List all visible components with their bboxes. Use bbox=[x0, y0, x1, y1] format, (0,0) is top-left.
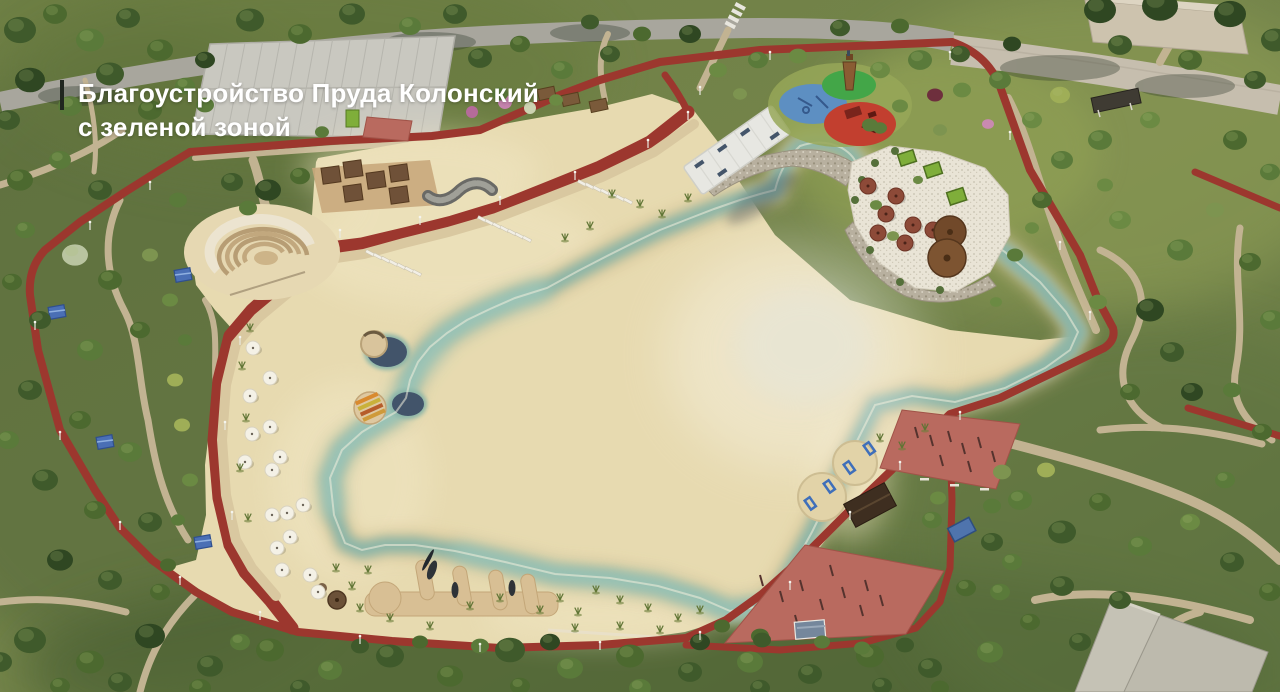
light-pole bbox=[769, 51, 772, 54]
light-pole bbox=[89, 221, 92, 224]
masterplan-render: Благоустройство Пруда Колонский с зелено… bbox=[0, 0, 1280, 692]
tree bbox=[990, 297, 1002, 307]
tree bbox=[412, 635, 428, 648]
project-title-line1: Благоустройство Пруда Колонский bbox=[78, 76, 539, 110]
light-pole bbox=[599, 641, 602, 644]
tree bbox=[178, 334, 192, 345]
tree bbox=[913, 176, 923, 184]
tree bbox=[983, 499, 1001, 514]
tree bbox=[239, 201, 257, 216]
light-pole bbox=[1059, 241, 1062, 244]
tree bbox=[167, 373, 183, 386]
tree bbox=[142, 248, 158, 261]
tree bbox=[854, 641, 870, 654]
light-pole bbox=[1089, 311, 1092, 314]
tree bbox=[993, 465, 1011, 480]
light-pole bbox=[699, 86, 702, 89]
tree bbox=[1037, 463, 1055, 478]
tree bbox=[1206, 203, 1224, 218]
tree bbox=[1007, 248, 1023, 261]
light-pole bbox=[699, 631, 702, 634]
tree bbox=[714, 619, 730, 632]
light-pole bbox=[179, 576, 182, 579]
tree bbox=[814, 635, 830, 648]
light-pole bbox=[949, 51, 952, 54]
tree bbox=[1003, 37, 1021, 52]
tree bbox=[733, 88, 747, 99]
light-pole bbox=[647, 139, 650, 142]
light-pole bbox=[359, 635, 362, 638]
deck-pavilions bbox=[312, 160, 440, 213]
tree bbox=[581, 15, 599, 30]
light-pole bbox=[149, 181, 152, 184]
tree bbox=[887, 231, 899, 241]
light-pole bbox=[419, 216, 422, 219]
tree bbox=[1025, 222, 1039, 233]
tree bbox=[549, 94, 563, 105]
tree bbox=[160, 558, 176, 571]
tree bbox=[171, 514, 185, 525]
tree bbox=[789, 49, 807, 64]
tree bbox=[169, 193, 187, 208]
tree bbox=[896, 638, 914, 653]
light-pole bbox=[259, 611, 262, 614]
tree bbox=[933, 124, 947, 135]
light-pole bbox=[849, 511, 852, 514]
title-accent-bar bbox=[60, 80, 64, 110]
light-pole bbox=[339, 229, 342, 232]
tree bbox=[870, 200, 882, 210]
light-pole bbox=[499, 196, 502, 199]
tree bbox=[1223, 383, 1241, 398]
light-pole bbox=[34, 321, 37, 324]
light-pole bbox=[959, 411, 962, 414]
tree bbox=[174, 418, 190, 431]
light-pole bbox=[687, 111, 690, 114]
light-pole bbox=[1009, 131, 1012, 134]
light-pole bbox=[899, 461, 902, 464]
light-pole bbox=[574, 171, 577, 174]
project-title: Благоустройство Пруда Колонский с зелено… bbox=[78, 76, 539, 144]
light-pole bbox=[231, 511, 234, 514]
stage bbox=[254, 251, 278, 265]
project-title-block: Благоустройство Пруда Колонский с зелено… bbox=[60, 76, 539, 144]
light-pole bbox=[119, 521, 122, 524]
tree bbox=[753, 633, 771, 648]
light-pole bbox=[239, 336, 242, 339]
light-pole bbox=[789, 581, 792, 584]
tree bbox=[873, 122, 887, 133]
tree bbox=[953, 83, 971, 98]
tree bbox=[1097, 178, 1113, 191]
tree bbox=[930, 491, 946, 504]
tree bbox=[1089, 295, 1107, 310]
tree bbox=[891, 19, 909, 34]
tree bbox=[709, 63, 727, 78]
project-title-line2: с зеленой зоной bbox=[78, 110, 539, 144]
light-pole bbox=[479, 643, 482, 646]
tree bbox=[982, 119, 994, 129]
light-pole bbox=[59, 431, 62, 434]
light-pole bbox=[224, 421, 227, 424]
amphitheater bbox=[184, 204, 340, 300]
tree bbox=[927, 88, 943, 101]
tree bbox=[162, 293, 178, 306]
tree bbox=[892, 99, 908, 112]
tree bbox=[633, 27, 651, 42]
tree bbox=[182, 473, 198, 486]
